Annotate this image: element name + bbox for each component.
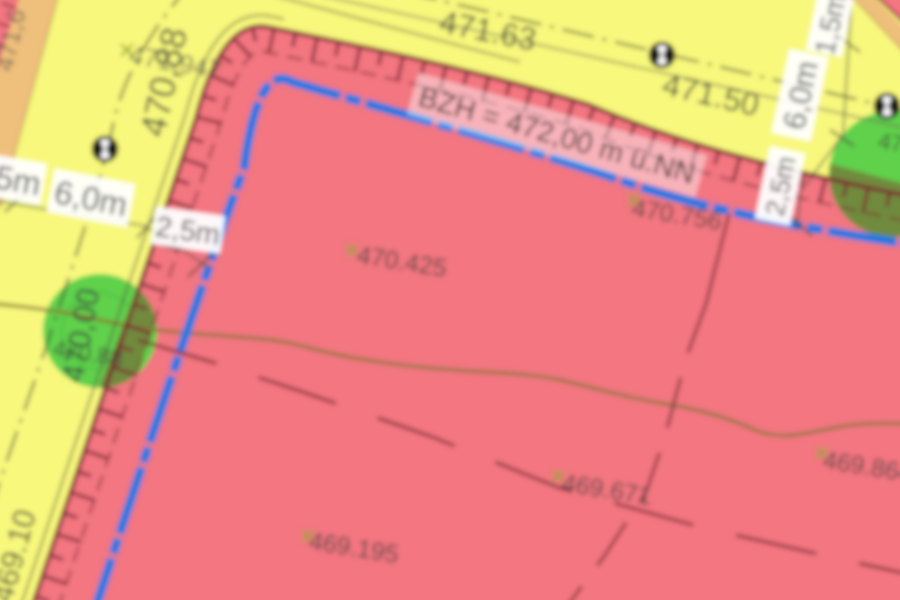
svg-text:47: 47: [876, 127, 900, 157]
svg-text:5m: 5m: [0, 158, 44, 202]
